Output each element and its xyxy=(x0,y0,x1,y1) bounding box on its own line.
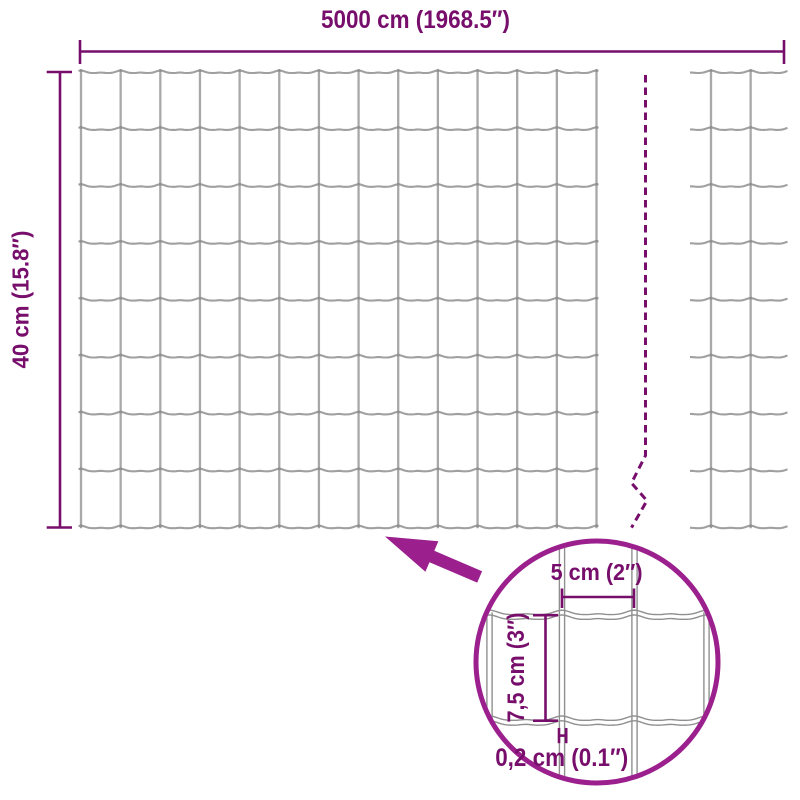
svg-text:7,5 cm (3″): 7,5 cm (3″) xyxy=(503,613,530,723)
svg-text:0,2 cm (0.1″): 0,2 cm (0.1″) xyxy=(495,744,628,772)
svg-text:40 cm (15.8″): 40 cm (15.8″) xyxy=(8,231,34,369)
svg-text:5 cm (2″): 5 cm (2″) xyxy=(551,559,643,585)
svg-text:5000 cm (1968.5″): 5000 cm (1968.5″) xyxy=(321,6,510,34)
